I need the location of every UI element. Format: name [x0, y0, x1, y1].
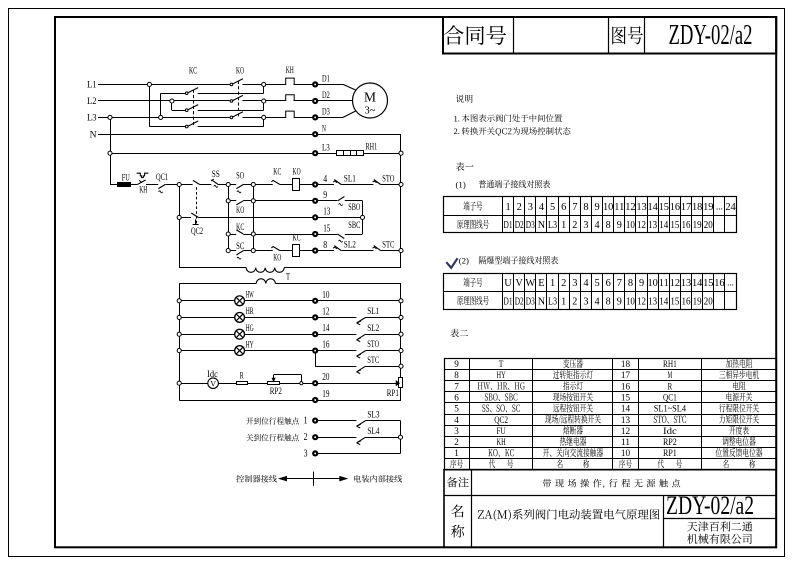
svg-text:3: 3: [583, 220, 588, 231]
svg-text:QC1: QC1: [663, 392, 677, 403]
svg-text:9: 9: [454, 359, 459, 370]
svg-text:D3: D3: [322, 107, 330, 118]
svg-text:10: 10: [647, 278, 657, 289]
svg-text:1.: 1.: [454, 113, 460, 123]
svg-text:10: 10: [626, 220, 635, 231]
svg-text:20: 20: [704, 296, 713, 307]
svg-text:4: 4: [539, 202, 545, 213]
svg-text:R: R: [668, 381, 673, 392]
svg-text:SL1: SL1: [344, 174, 356, 184]
svg-text:SS: SS: [212, 170, 220, 180]
svg-text:13: 13: [323, 207, 330, 218]
svg-text:D3: D3: [526, 220, 535, 231]
svg-text:24: 24: [725, 202, 736, 213]
svg-text:16: 16: [621, 381, 630, 392]
svg-text:17: 17: [621, 370, 630, 381]
svg-text:15: 15: [621, 392, 630, 403]
svg-text:16: 16: [670, 202, 680, 213]
svg-text:12: 12: [637, 220, 646, 231]
svg-text:11: 11: [659, 278, 669, 289]
svg-text:QC2: QC2: [494, 415, 508, 426]
svg-text:STO: STO: [367, 340, 379, 350]
svg-text:D3: D3: [526, 296, 535, 307]
svg-text:1: 1: [550, 278, 555, 289]
svg-text:L3: L3: [322, 142, 330, 153]
svg-text:14: 14: [621, 404, 630, 415]
svg-text:6: 6: [454, 392, 459, 403]
svg-text:SL4: SL4: [367, 427, 379, 437]
svg-text:D1: D1: [504, 296, 513, 307]
svg-text:STO: STO: [382, 174, 394, 184]
svg-text:V: V: [210, 380, 216, 389]
svg-text:15: 15: [659, 202, 669, 213]
svg-text:18: 18: [692, 202, 702, 213]
svg-text:D2: D2: [515, 220, 524, 231]
svg-text:QC1: QC1: [156, 173, 168, 183]
svg-text:N: N: [538, 220, 546, 231]
svg-text:KO: KO: [293, 167, 301, 177]
svg-text:14: 14: [322, 323, 329, 334]
svg-text:(2): (2): [459, 256, 469, 266]
svg-text:...: ...: [727, 278, 734, 288]
svg-text:16: 16: [682, 220, 691, 231]
svg-text:15: 15: [323, 223, 330, 234]
svg-text:T: T: [286, 273, 290, 283]
svg-text:18: 18: [621, 359, 630, 370]
svg-text:D1: D1: [322, 74, 330, 85]
svg-text:10: 10: [626, 296, 635, 307]
svg-text:1: 1: [561, 220, 566, 231]
svg-text:ZDY-02/a2: ZDY-02/a2: [666, 491, 754, 520]
svg-text:(1): (1): [456, 180, 466, 190]
svg-text:SBO: SBO: [348, 203, 360, 213]
svg-text:11: 11: [614, 202, 624, 213]
svg-text:Idc: Idc: [663, 426, 677, 437]
svg-text:12: 12: [625, 202, 635, 213]
svg-text:12: 12: [670, 278, 680, 289]
svg-text:19: 19: [693, 296, 702, 307]
svg-text:4: 4: [595, 220, 600, 231]
svg-text:7: 7: [617, 278, 622, 289]
svg-text:19: 19: [703, 202, 713, 213]
svg-text:RP2: RP2: [663, 437, 677, 448]
svg-text:KH: KH: [286, 66, 294, 76]
svg-text:HY: HY: [497, 370, 506, 381]
svg-text:STC: STC: [367, 356, 379, 366]
svg-text:6: 6: [606, 278, 611, 289]
svg-text:5: 5: [454, 404, 459, 415]
svg-text:11: 11: [621, 437, 630, 448]
svg-text:14: 14: [692, 278, 703, 289]
svg-text:20: 20: [704, 220, 713, 231]
svg-text:SO: SO: [236, 172, 244, 182]
svg-text:L3: L3: [87, 114, 97, 124]
svg-text:RP1: RP1: [663, 448, 677, 459]
svg-text:15: 15: [703, 278, 713, 289]
svg-text:SBC: SBC: [348, 221, 360, 231]
svg-text:9: 9: [594, 202, 599, 213]
svg-text:14: 14: [659, 220, 668, 231]
svg-text:10: 10: [603, 202, 613, 213]
svg-text:ZDY-02/a2: ZDY-02/a2: [669, 20, 753, 51]
svg-text:L2: L2: [87, 97, 97, 107]
svg-text:W: W: [525, 278, 535, 289]
svg-text:3: 3: [583, 296, 588, 307]
svg-text:T: T: [499, 359, 504, 370]
svg-text:2: 2: [572, 296, 577, 307]
svg-text:N: N: [322, 123, 326, 134]
svg-text:4: 4: [595, 296, 600, 307]
svg-text:Idc: Idc: [207, 370, 218, 380]
svg-text:19: 19: [693, 220, 702, 231]
svg-text:14: 14: [659, 296, 668, 307]
svg-text:SC: SC: [236, 242, 244, 252]
svg-text:13: 13: [648, 296, 657, 307]
svg-text:KC: KC: [273, 167, 281, 177]
svg-text:8: 8: [323, 240, 327, 251]
svg-text:RH1: RH1: [366, 142, 378, 153]
svg-text:SL3: SL3: [367, 410, 379, 420]
svg-text:2.: 2.: [454, 126, 460, 136]
svg-text:10: 10: [322, 290, 329, 301]
svg-text:N: N: [90, 130, 97, 140]
svg-text:4: 4: [583, 278, 589, 289]
svg-text:HY: HY: [246, 340, 254, 350]
svg-text:1: 1: [304, 416, 308, 427]
svg-text:STC: STC: [382, 241, 394, 251]
svg-text:2: 2: [454, 437, 459, 448]
svg-text:KO: KO: [236, 67, 244, 77]
svg-text:9: 9: [323, 190, 327, 201]
svg-text:RP2: RP2: [270, 387, 282, 397]
svg-text:V: V: [515, 278, 523, 289]
svg-text:5: 5: [550, 202, 555, 213]
svg-text:2: 2: [517, 202, 522, 213]
svg-text:13: 13: [621, 415, 630, 426]
svg-text:N: N: [538, 296, 546, 307]
svg-text:8: 8: [454, 370, 459, 381]
svg-text:2: 2: [561, 278, 566, 289]
svg-text:20: 20: [322, 372, 329, 383]
svg-text:D1: D1: [504, 220, 513, 231]
svg-text:KC: KC: [293, 234, 301, 244]
svg-text:8: 8: [628, 278, 633, 289]
svg-text:9: 9: [617, 296, 622, 307]
svg-text:KC: KC: [189, 67, 197, 77]
svg-text:D2: D2: [515, 296, 524, 307]
svg-text:RH1: RH1: [663, 359, 677, 370]
svg-text:16: 16: [322, 340, 329, 351]
svg-text:HG: HG: [246, 324, 254, 334]
svg-text:3~: 3~: [365, 106, 376, 117]
svg-text:6: 6: [561, 202, 566, 213]
svg-text:9: 9: [639, 278, 644, 289]
svg-text:KO: KO: [236, 206, 244, 216]
svg-text:3: 3: [572, 278, 577, 289]
svg-text:8: 8: [606, 296, 611, 307]
svg-text:FU: FU: [122, 174, 130, 184]
svg-text:1: 1: [561, 296, 566, 307]
svg-text:16: 16: [682, 296, 691, 307]
svg-text:13: 13: [636, 202, 646, 213]
svg-text:RP1: RP1: [387, 389, 399, 399]
svg-text:1: 1: [505, 202, 510, 213]
svg-text:10: 10: [621, 448, 630, 459]
svg-text:15: 15: [670, 220, 679, 231]
svg-text:7: 7: [572, 202, 577, 213]
svg-text:L3: L3: [548, 296, 557, 307]
svg-text:KH: KH: [139, 186, 147, 196]
svg-text:QC2: QC2: [191, 227, 203, 237]
svg-text:12: 12: [322, 306, 329, 317]
svg-text:KC: KC: [236, 223, 244, 233]
svg-text:13: 13: [681, 278, 691, 289]
svg-text:4: 4: [454, 415, 459, 426]
svg-text:16: 16: [714, 278, 724, 289]
svg-text:...: ...: [716, 201, 723, 211]
svg-text:12: 12: [621, 426, 630, 437]
svg-text:KO: KO: [273, 253, 281, 263]
svg-text:R: R: [240, 372, 244, 382]
svg-text:L3: L3: [548, 220, 557, 231]
svg-text:17: 17: [681, 202, 691, 213]
svg-text:3: 3: [304, 448, 308, 459]
svg-text:HR: HR: [246, 307, 255, 317]
svg-text:8: 8: [606, 220, 611, 231]
svg-text:HW: HW: [246, 291, 254, 301]
svg-text:SL2: SL2: [344, 241, 356, 251]
svg-text:1: 1: [454, 448, 459, 459]
svg-text:E: E: [538, 278, 544, 289]
svg-text:3: 3: [528, 202, 533, 213]
svg-text:2: 2: [572, 220, 577, 231]
svg-text:7: 7: [454, 381, 459, 392]
svg-text:15: 15: [670, 296, 679, 307]
svg-text:M: M: [364, 89, 376, 104]
svg-text:4: 4: [323, 174, 327, 185]
svg-text:U: U: [504, 278, 512, 289]
svg-text:3: 3: [454, 426, 459, 437]
svg-text:2: 2: [304, 432, 308, 443]
svg-text:SL1: SL1: [367, 307, 379, 317]
svg-text:12: 12: [637, 296, 646, 307]
svg-text:M: M: [668, 370, 673, 381]
svg-text:FU: FU: [497, 426, 506, 437]
svg-text:L1: L1: [87, 81, 97, 91]
svg-text:13: 13: [648, 220, 657, 231]
svg-text:SL2: SL2: [367, 324, 379, 334]
svg-text:8: 8: [583, 202, 588, 213]
svg-text:5: 5: [594, 278, 599, 289]
svg-text:D2: D2: [322, 90, 330, 101]
svg-text:SL1~SL4: SL1~SL4: [654, 404, 686, 415]
svg-text:9: 9: [617, 220, 622, 231]
svg-text:19: 19: [322, 389, 329, 400]
svg-text:14: 14: [647, 202, 658, 213]
svg-text:KH: KH: [497, 437, 506, 448]
